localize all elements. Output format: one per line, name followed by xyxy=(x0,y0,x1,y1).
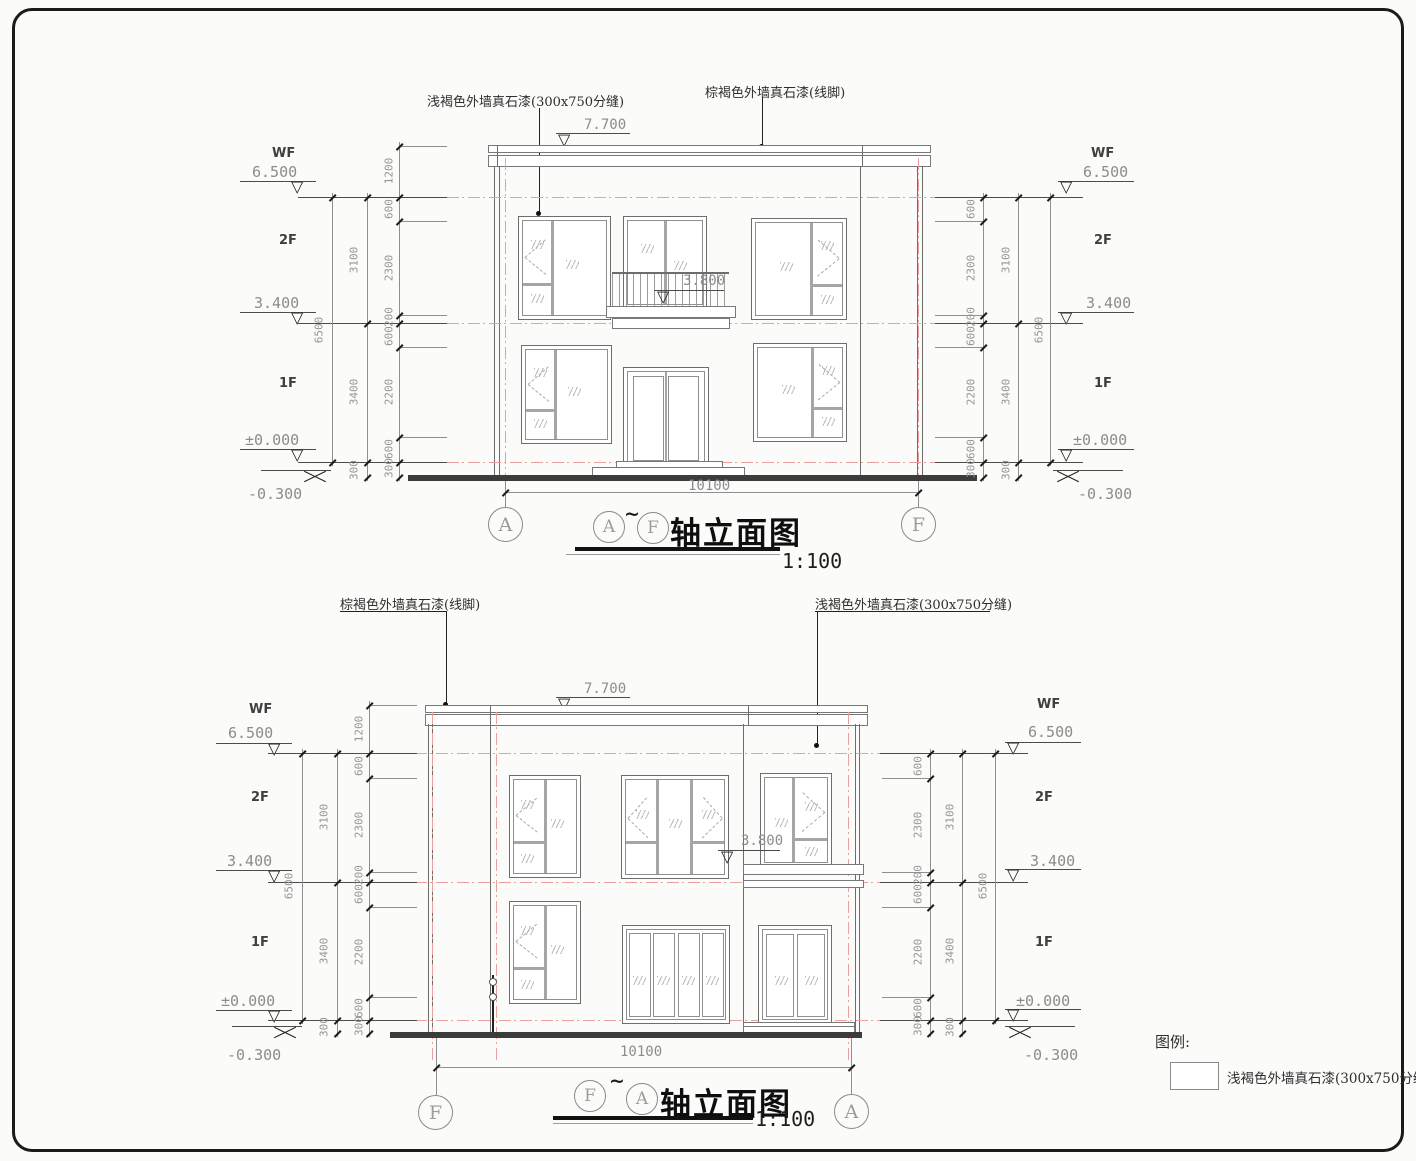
level-triangle-icon xyxy=(1060,179,1072,195)
legend-item: 浅褐色外墙真石漆(300x750分缝) xyxy=(1227,1067,1416,1087)
level-3400: 3.400 xyxy=(227,852,272,870)
level-7700: 7.700 xyxy=(584,681,626,697)
drawing-sheet: 浅褐色外墙真石漆(300x750分缝) 棕褐色外墙真石漆(线脚) 7.700 xyxy=(0,0,1416,1161)
level-underline xyxy=(216,870,292,871)
level-line xyxy=(935,197,1083,198)
level-underline xyxy=(240,449,316,450)
parapet-coping-bottom xyxy=(488,155,931,167)
axis-bubble-a: A xyxy=(834,1094,869,1129)
leader-line xyxy=(446,611,447,704)
level-triangle-icon xyxy=(291,447,303,463)
level-x-icon xyxy=(1008,1026,1032,1040)
floor-label-wf: WF xyxy=(249,702,272,717)
title-axis-f: F xyxy=(574,1080,606,1112)
parapet-coping-bottom xyxy=(425,714,868,726)
axis-line-mid xyxy=(496,712,497,1060)
level-line xyxy=(298,197,447,198)
level-triangle-icon xyxy=(1007,867,1019,883)
level-x-icon xyxy=(1056,470,1080,484)
level-6500: 6.500 xyxy=(1083,163,1128,181)
axis-line-f xyxy=(918,158,919,498)
wall-right xyxy=(859,724,860,1032)
leader-dot xyxy=(814,743,819,748)
floor-label-2f: 2F xyxy=(1035,790,1053,805)
window-2f-right xyxy=(751,218,847,320)
legend-title: 图例: xyxy=(1155,1031,1190,1052)
window-2f-left xyxy=(518,216,611,320)
wall-bay-line xyxy=(860,166,861,477)
level-underline xyxy=(216,743,292,744)
floor-label-1f: 1F xyxy=(1035,935,1053,950)
annotation-paint-light: 浅褐色外墙真石漆(300x750分缝) xyxy=(427,91,624,110)
level-underline xyxy=(216,1010,292,1011)
window-1f-left xyxy=(509,901,581,1004)
level-triangle-icon xyxy=(721,849,733,865)
door-1f-right xyxy=(758,925,832,1024)
dim-10100: 10100 xyxy=(620,1044,662,1060)
entry-door xyxy=(623,367,709,469)
title-axis-a: A xyxy=(593,511,625,543)
wall-left-inner xyxy=(499,166,500,477)
window-2f-center xyxy=(621,775,729,879)
floor-label-1f: 1F xyxy=(279,376,297,391)
balcony-slab xyxy=(743,864,864,875)
leader-line xyxy=(340,611,447,612)
leader-line xyxy=(762,97,763,146)
level-7700: 7.700 xyxy=(584,117,626,133)
level-line xyxy=(268,1020,417,1021)
level-m0300: -0.300 xyxy=(248,485,302,503)
level-m0300: -0.300 xyxy=(227,1046,281,1064)
leader-line xyxy=(815,611,990,612)
wall-right xyxy=(922,166,923,477)
floor-label-wf: WF xyxy=(1037,697,1060,712)
window-1f-right xyxy=(753,343,847,442)
level-0000: ±0.000 xyxy=(1016,992,1070,1010)
level-m0300: -0.300 xyxy=(1078,485,1132,503)
coping-joint xyxy=(748,705,749,726)
coping-joint xyxy=(497,145,498,166)
axis-bubble-f: F xyxy=(418,1095,453,1130)
floor-label-wf: WF xyxy=(1091,146,1114,161)
floor-label-2f: 2F xyxy=(251,790,269,805)
floor-label-1f: 1F xyxy=(251,935,269,950)
level-line xyxy=(880,882,1028,883)
level-triangle-icon xyxy=(291,179,303,195)
level-line xyxy=(268,753,417,754)
downspout-bracket xyxy=(489,993,497,1001)
level-6500: 6.500 xyxy=(1028,723,1073,741)
title-axis-a: A xyxy=(626,1083,658,1115)
axis-bubble-a: A xyxy=(488,507,523,542)
level-6500: 6.500 xyxy=(228,724,273,742)
level-x-icon xyxy=(303,470,327,484)
level-line xyxy=(935,323,1083,324)
window-1f-left xyxy=(521,345,612,444)
level-0000: ±0.000 xyxy=(1073,431,1127,449)
axis-line-f xyxy=(432,712,433,1060)
axis-line-a xyxy=(505,158,506,498)
tilde: ~ xyxy=(609,1070,625,1092)
datum-line-650 xyxy=(447,197,937,198)
annotation-paint-dark: 棕褐色外墙真石漆(线脚) xyxy=(705,82,845,101)
coping-joint xyxy=(862,145,863,166)
level-3800: 3.800 xyxy=(741,833,783,849)
title-underline xyxy=(553,1116,753,1120)
level-m0300: -0.300 xyxy=(1024,1046,1078,1064)
wall-left xyxy=(494,166,495,477)
dim-line-10100 xyxy=(436,1067,851,1068)
wall-left xyxy=(428,724,429,1032)
floor-label-wf: WF xyxy=(272,146,295,161)
floor-label-1f: 1F xyxy=(1094,376,1112,391)
sliding-door-1f xyxy=(622,925,730,1024)
axis-bubble-f: F xyxy=(901,507,936,542)
balcony-slab-lower xyxy=(612,318,730,329)
balcony-slab xyxy=(606,306,736,318)
level-underline xyxy=(240,181,316,182)
dim-10100: 10100 xyxy=(688,478,730,494)
window-2f-balcony xyxy=(760,773,832,867)
downspout-bracket xyxy=(489,978,497,986)
level-line xyxy=(880,753,1028,754)
level-triangle-icon xyxy=(268,1008,280,1024)
floor-label-2f: 2F xyxy=(279,233,297,248)
parapet-coping-top xyxy=(488,145,931,153)
window-2f-left xyxy=(509,775,581,878)
parapet-coping-top xyxy=(425,705,868,713)
balcony-slab-lower xyxy=(743,880,864,888)
level-triangle-icon xyxy=(1060,447,1072,463)
level-3400: 3.400 xyxy=(1086,294,1131,312)
title-underline xyxy=(575,547,780,551)
title-underline-thin xyxy=(553,1123,753,1124)
level-3400: 3.400 xyxy=(1030,852,1075,870)
legend-swatch xyxy=(1170,1062,1219,1090)
title-scale: 1:100 xyxy=(782,549,842,573)
wall-balcony-line xyxy=(743,724,744,1032)
level-x-icon xyxy=(273,1026,297,1040)
datum-line-650 xyxy=(415,753,905,754)
coping-joint xyxy=(490,705,491,726)
title-underline-thin xyxy=(566,554,780,555)
floor-label-2f: 2F xyxy=(1094,233,1112,248)
level-underline xyxy=(240,312,316,313)
level-triangle-icon xyxy=(268,741,280,757)
wall-right-inner xyxy=(855,724,856,1032)
level-3800: 3.800 xyxy=(683,273,725,289)
level-triangle-icon xyxy=(657,289,669,305)
level-line xyxy=(298,462,447,463)
title-axis-f: F xyxy=(637,512,669,544)
ground-line xyxy=(390,1032,862,1038)
title-scale: 1:100 xyxy=(755,1107,815,1131)
